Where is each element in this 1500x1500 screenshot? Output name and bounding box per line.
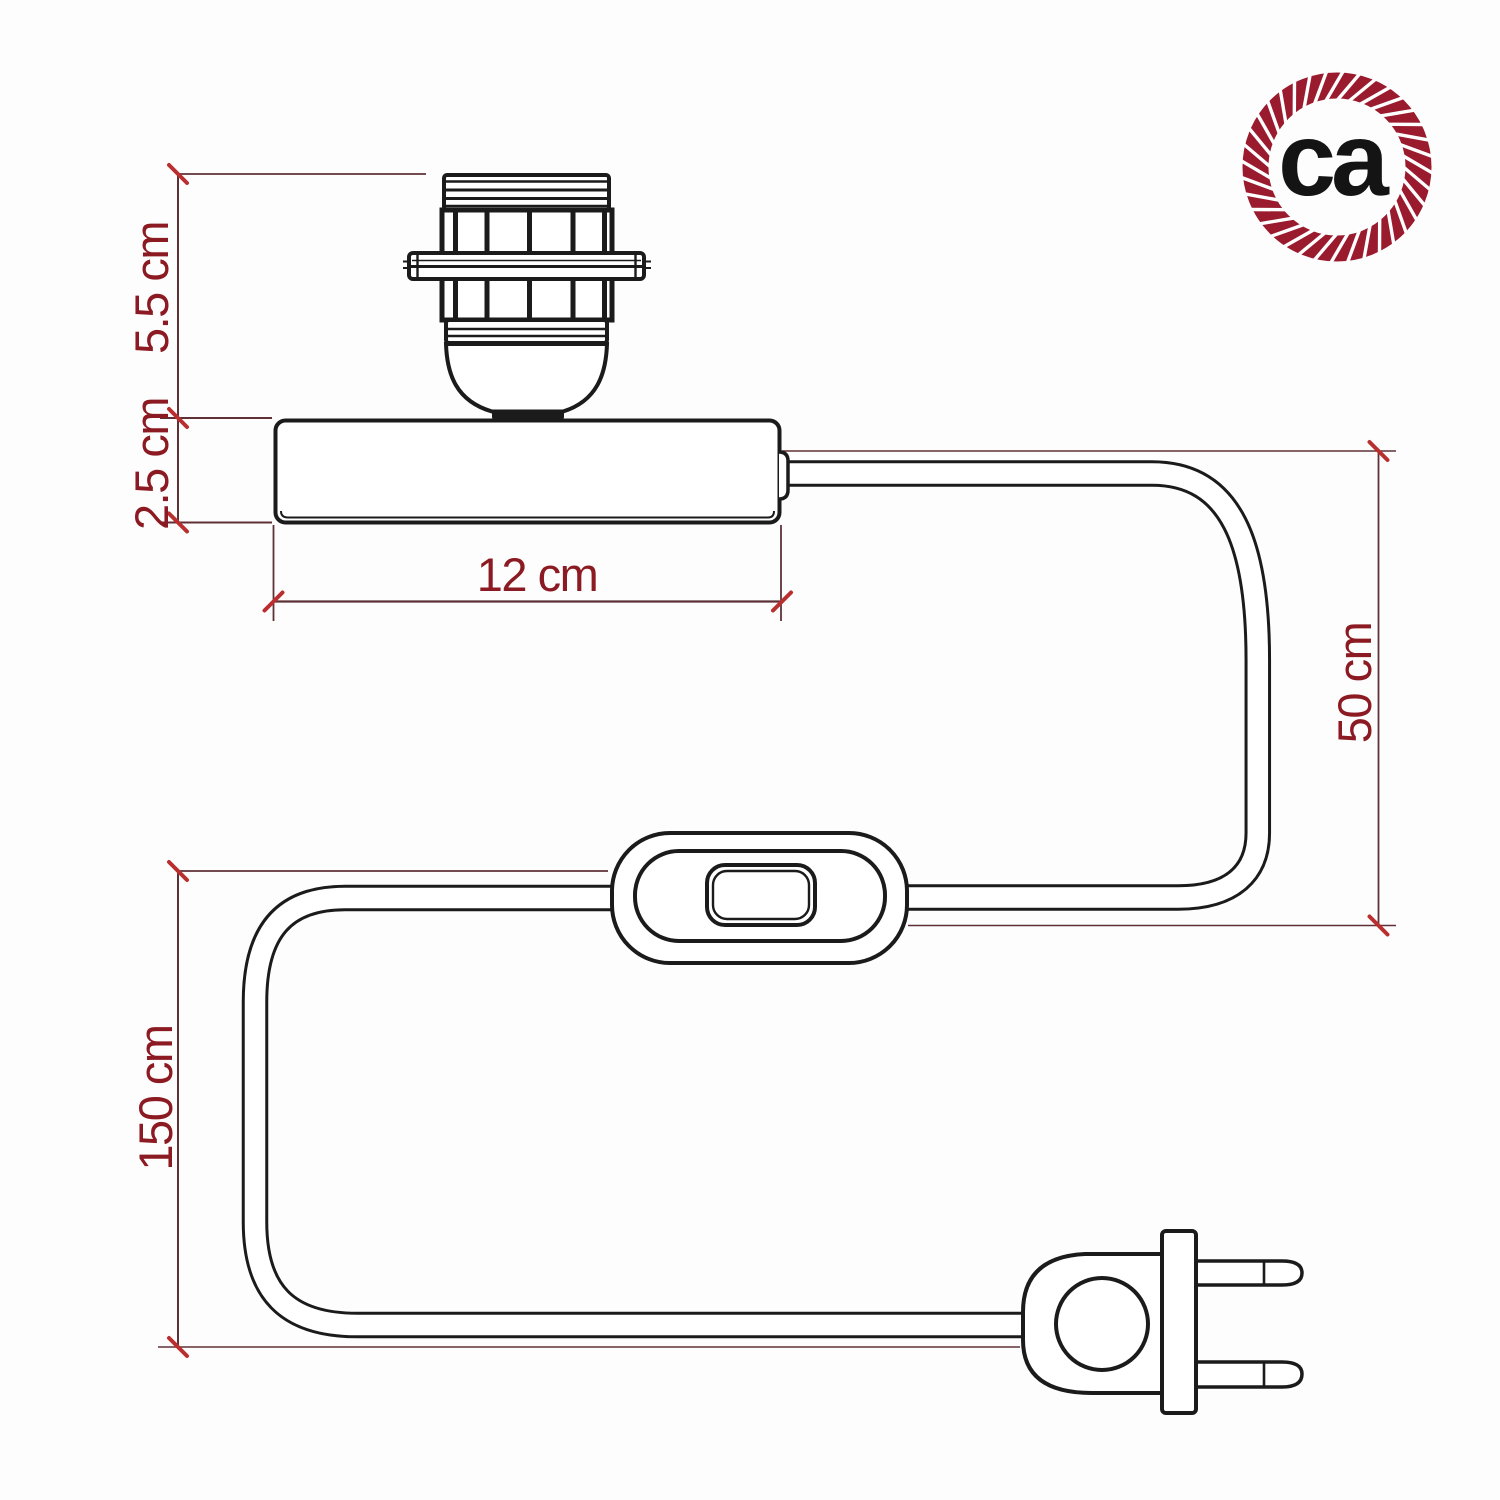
svg-text:2.5 cm: 2.5 cm — [125, 398, 178, 530]
svg-text:50 cm: 50 cm — [1328, 623, 1381, 744]
svg-text:ca: ca — [1278, 102, 1390, 218]
svg-text:5.5 cm: 5.5 cm — [125, 222, 178, 354]
svg-text:150 cm: 150 cm — [129, 1025, 182, 1170]
svg-text:12 cm: 12 cm — [477, 548, 598, 601]
